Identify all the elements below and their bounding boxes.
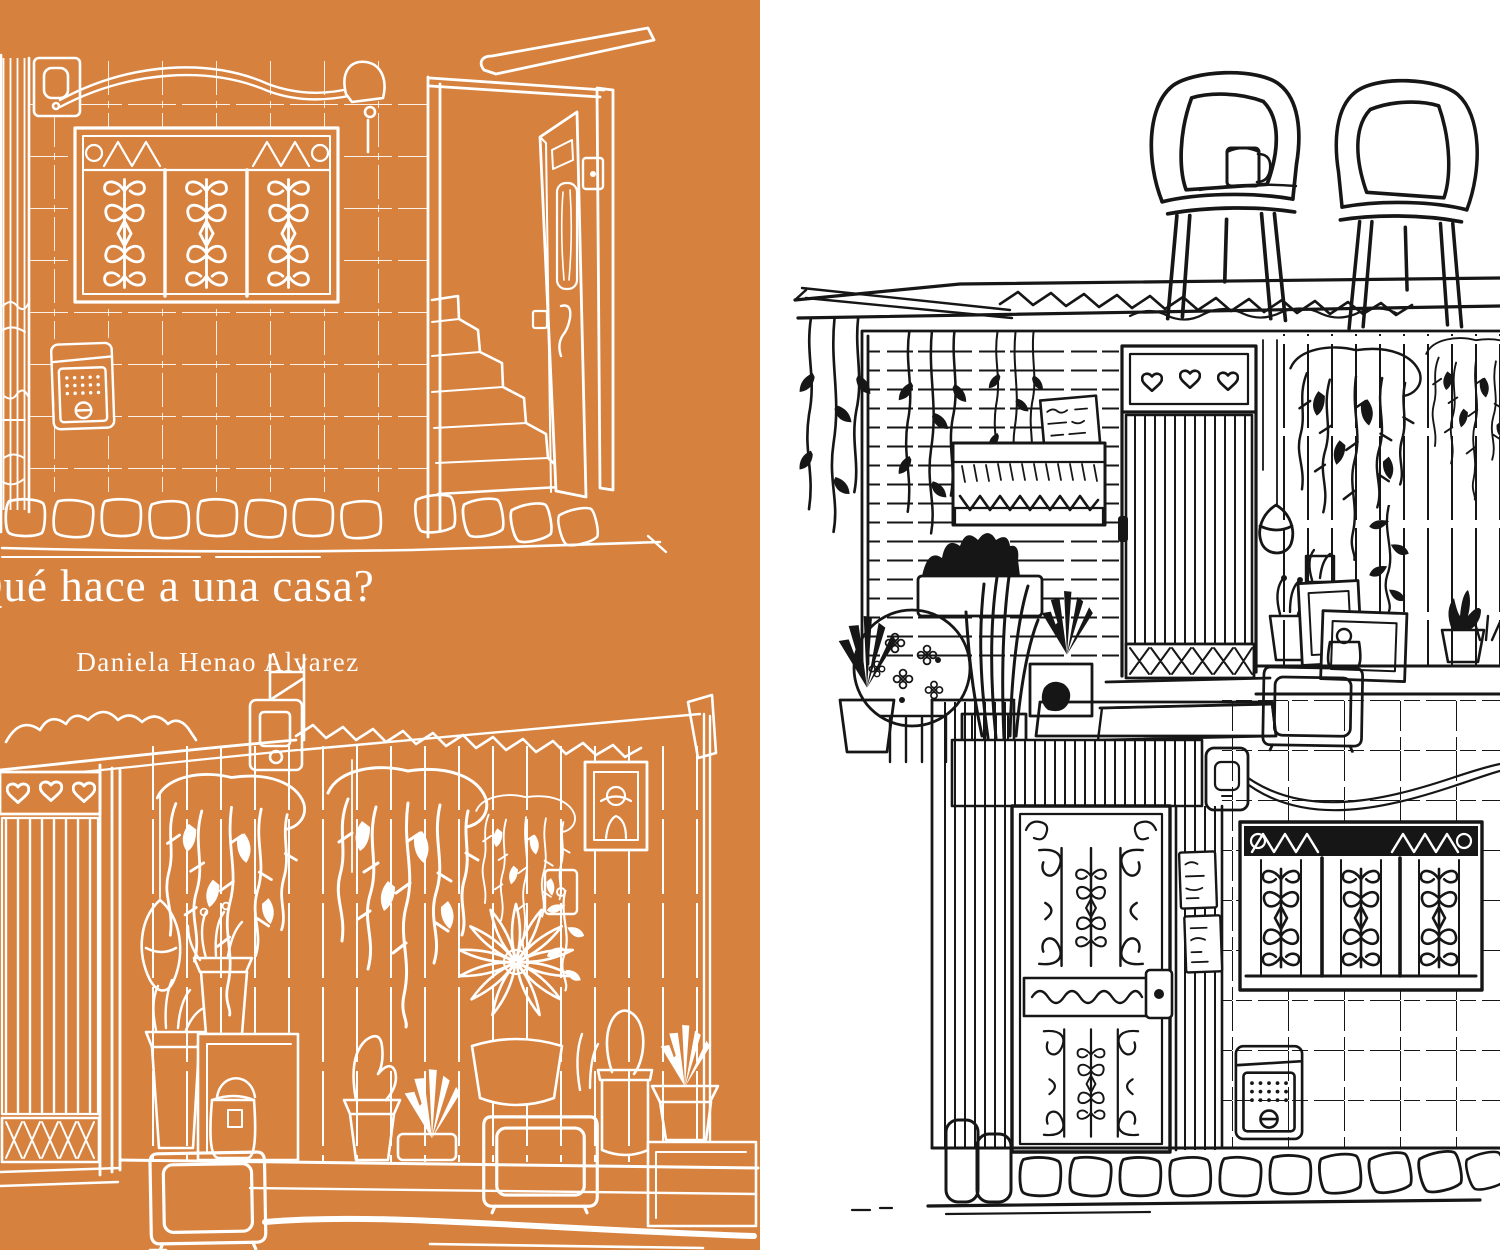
cover-author: Daniela Henao Alvarez	[0, 647, 436, 678]
doorbell-box	[34, 58, 80, 116]
artwork-canvas	[0, 0, 1500, 1250]
book-cover-spread: Qué hace a una casa? Daniela Henao Alvar…	[0, 0, 1500, 1250]
picture-frame	[585, 762, 647, 850]
intercom-left	[51, 336, 115, 438]
right-art-panel	[760, 0, 1500, 1250]
left-cover-panel	[0, 0, 760, 1250]
hand-written-sign	[1040, 396, 1100, 449]
cover-title: Qué hace a una casa?	[0, 561, 375, 613]
grille-window-right	[1240, 822, 1482, 990]
ornate-gate	[1012, 806, 1172, 1152]
grille-window	[75, 128, 338, 302]
basket-window	[953, 443, 1105, 525]
